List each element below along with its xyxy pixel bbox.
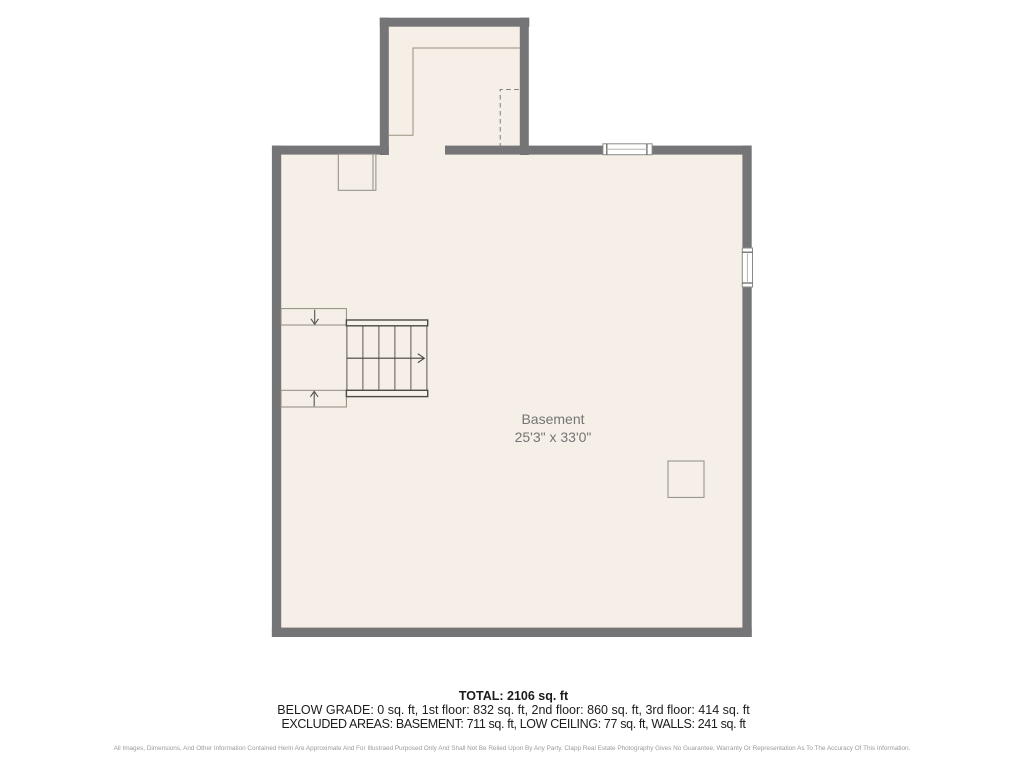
svg-text:Basement: Basement xyxy=(521,411,584,427)
svg-text:TOTAL: 2106 sq. ft: TOTAL: 2106 sq. ft xyxy=(459,689,569,703)
svg-text:All Images, Dimensions, And Ot: All Images, Dimensions, And Other Inform… xyxy=(114,745,911,752)
svg-text:EXCLUDED AREAS: BASEMENT: 711: EXCLUDED AREAS: BASEMENT: 711 sq. ft, LO… xyxy=(281,717,746,731)
svg-text:BELOW GRADE: 0 sq. ft, 1st flo: BELOW GRADE: 0 sq. ft, 1st floor: 832 sq… xyxy=(277,703,750,717)
svg-text:25'3" x 33'0": 25'3" x 33'0" xyxy=(515,429,592,445)
